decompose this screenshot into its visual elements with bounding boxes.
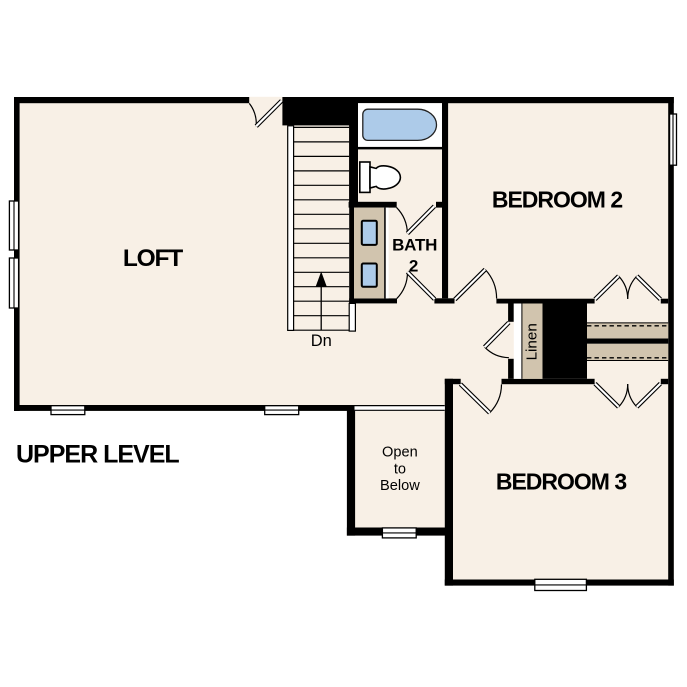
svg-text:BATH: BATH xyxy=(392,235,437,254)
svg-text:Linen: Linen xyxy=(523,323,540,360)
svg-text:Open: Open xyxy=(382,444,418,460)
svg-text:Below: Below xyxy=(380,478,420,494)
svg-text:LOFT: LOFT xyxy=(123,245,183,272)
svg-text:BEDROOM 3: BEDROOM 3 xyxy=(496,469,627,495)
svg-text:2: 2 xyxy=(409,256,418,275)
svg-text:to: to xyxy=(394,461,406,477)
svg-text:UPPER LEVEL: UPPER LEVEL xyxy=(16,441,179,469)
svg-text:Dn: Dn xyxy=(311,332,332,350)
svg-text:BEDROOM 2: BEDROOM 2 xyxy=(492,187,623,213)
